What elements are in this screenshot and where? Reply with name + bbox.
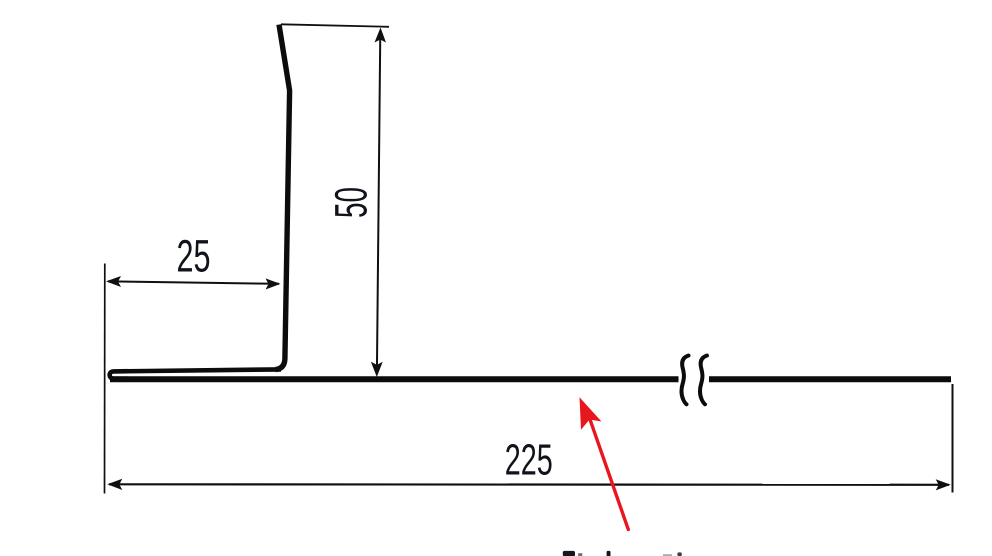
svg-text:50: 50 — [326, 187, 377, 218]
svg-text:225: 225 — [505, 436, 553, 485]
svg-text:25: 25 — [177, 231, 211, 282]
